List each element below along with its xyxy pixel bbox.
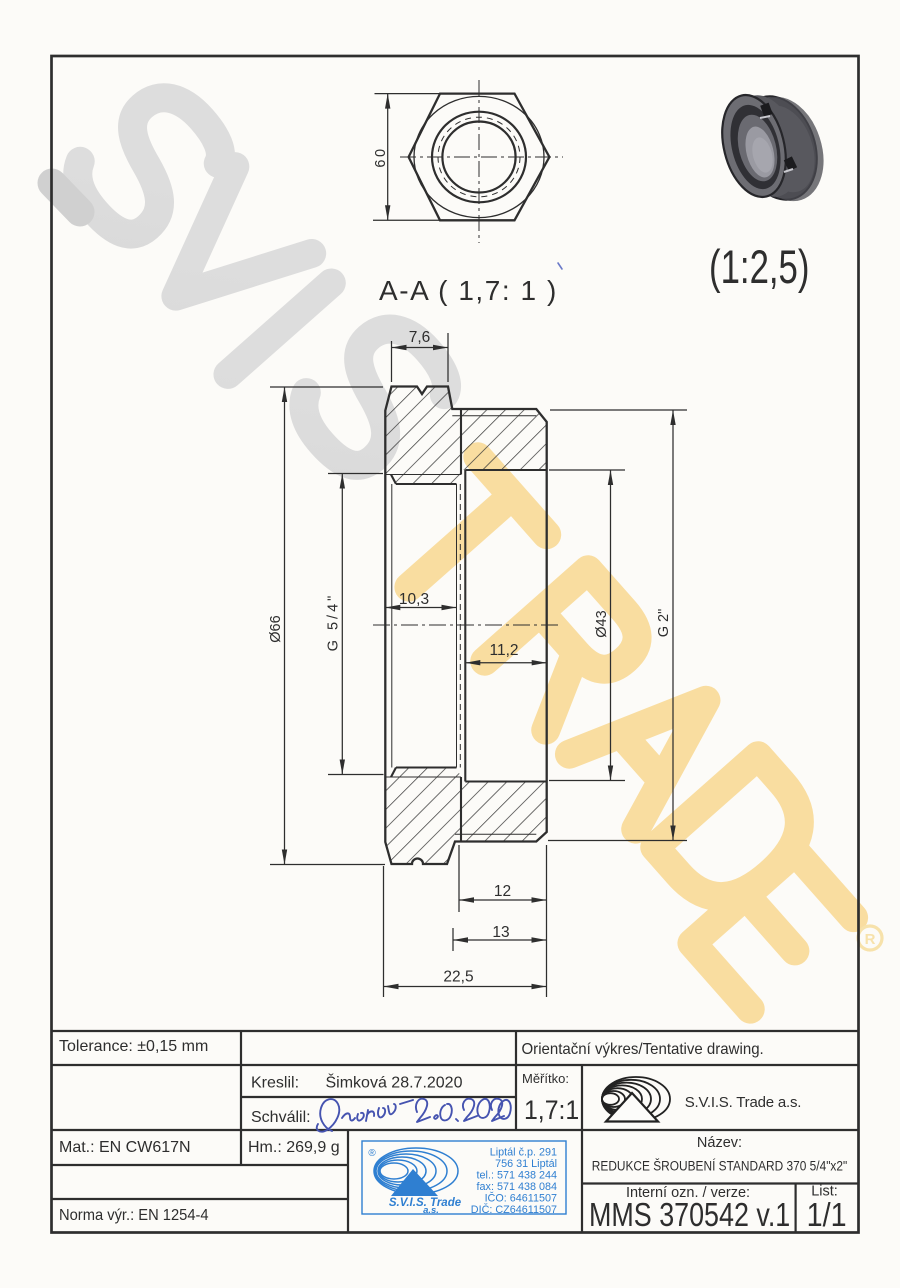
svg-text:Ø43: Ø43 bbox=[594, 610, 610, 637]
svg-text:12: 12 bbox=[494, 883, 511, 900]
svg-text:fax: 571 438 084: fax: 571 438 084 bbox=[477, 1181, 557, 1193]
svg-text:Tolerance: ±0,15 mm: Tolerance: ±0,15 mm bbox=[59, 1038, 208, 1055]
svg-text:a.s.: a.s. bbox=[423, 1205, 439, 1216]
svg-text:Hm.: 269,9 g: Hm.: 269,9 g bbox=[248, 1139, 340, 1156]
svg-text:756 31 Liptál: 756 31 Liptál bbox=[495, 1158, 557, 1170]
svg-text:S.V.I.S. Trade a.s.: S.V.I.S. Trade a.s. bbox=[685, 1094, 802, 1111]
svg-text:A-A ( 1,7: 1 ): A-A ( 1,7: 1 ) bbox=[379, 275, 558, 306]
svg-text:11,2: 11,2 bbox=[489, 642, 518, 659]
svg-text:Liptál č.p. 291: Liptál č.p. 291 bbox=[490, 1147, 557, 1159]
svg-text:22,5: 22,5 bbox=[443, 969, 473, 986]
svg-text:MMS 370542 v.1: MMS 370542 v.1 bbox=[589, 1197, 790, 1233]
svg-text:Schválil:: Schválil: bbox=[251, 1109, 311, 1126]
svg-text:®: ® bbox=[368, 1148, 376, 1159]
svg-text:R: R bbox=[865, 931, 876, 948]
svg-text:Kreslil:: Kreslil: bbox=[251, 1075, 299, 1092]
svg-text:REDUKCE ŠROUBENÍ STANDARD 370: REDUKCE ŠROUBENÍ STANDARD 370 5/4"x2" bbox=[592, 1158, 848, 1174]
svg-text:G 2": G 2" bbox=[656, 609, 672, 638]
svg-text:1/1: 1/1 bbox=[807, 1196, 847, 1233]
svg-text:Měřítko:: Měřítko: bbox=[522, 1071, 569, 1086]
svg-text:Orientační výkres/Tentative dr: Orientační výkres/Tentative drawing. bbox=[522, 1041, 764, 1059]
svg-text:60: 60 bbox=[373, 146, 389, 167]
svg-text:1,7:1: 1,7:1 bbox=[524, 1096, 579, 1125]
svg-text:tel.: 571 438 244: tel.: 571 438 244 bbox=[477, 1170, 557, 1182]
svg-text:Norma výr.: EN 1254-4: Norma výr.: EN 1254-4 bbox=[59, 1206, 209, 1224]
svg-text:(1:2,5): (1:2,5) bbox=[709, 241, 809, 293]
svg-text:Šimková 28.7.2020: Šimková 28.7.2020 bbox=[326, 1073, 463, 1092]
svg-text:13: 13 bbox=[492, 924, 509, 941]
svg-text:Mat.: EN CW617N: Mat.: EN CW617N bbox=[59, 1139, 191, 1156]
svg-text:10,3: 10,3 bbox=[399, 591, 429, 608]
svg-text:DIČ: CZ64611507: DIČ: CZ64611507 bbox=[471, 1203, 557, 1216]
svg-text:7,6: 7,6 bbox=[409, 329, 431, 346]
svg-text:IČO: 64611507: IČO: 64611507 bbox=[485, 1192, 557, 1205]
svg-text:G 5/4": G 5/4" bbox=[326, 593, 342, 652]
svg-text:Ø66: Ø66 bbox=[268, 615, 284, 642]
svg-text:Název:: Název: bbox=[697, 1135, 742, 1151]
